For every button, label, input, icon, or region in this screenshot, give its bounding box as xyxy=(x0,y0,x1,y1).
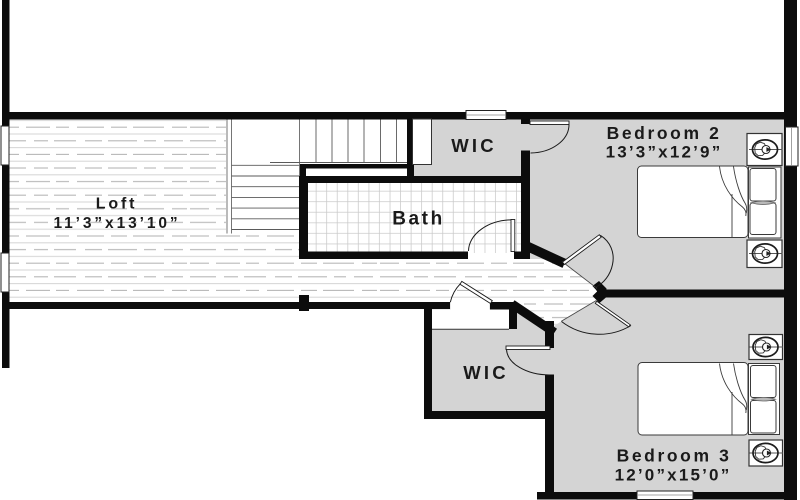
svg-text:11’3”x13’10”: 11’3”x13’10” xyxy=(53,215,180,232)
svg-text:Bedroom 3: Bedroom 3 xyxy=(617,446,732,466)
svg-text:Loft: Loft xyxy=(96,196,137,213)
svg-text:WIC: WIC xyxy=(451,135,497,156)
svg-text:Bath: Bath xyxy=(392,209,445,230)
svg-text:WIC: WIC xyxy=(463,362,509,383)
svg-text:13’3”x12’9”: 13’3”x12’9” xyxy=(606,143,723,162)
svg-text:12’0”x15’0”: 12’0”x15’0” xyxy=(615,466,732,485)
svg-text:Bedroom 2: Bedroom 2 xyxy=(607,123,722,143)
